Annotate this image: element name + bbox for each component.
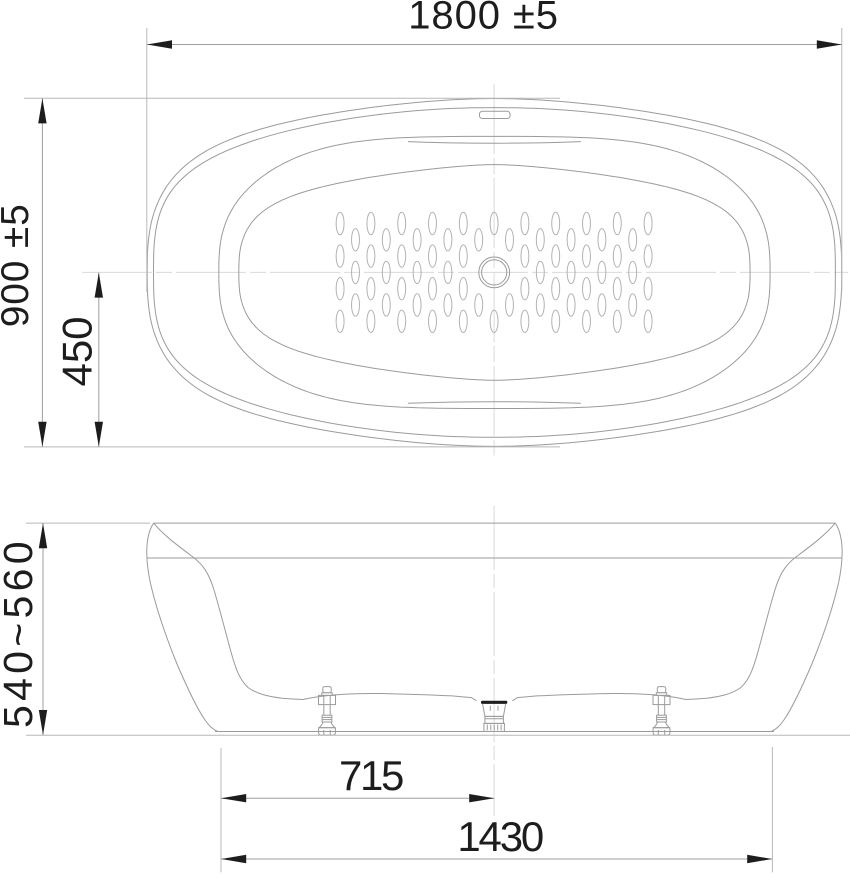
svg-text:1800 ±5: 1800 ±5 [408,0,559,38]
svg-text:715: 715 [339,752,403,799]
svg-text:540~560: 540~560 [0,537,41,728]
svg-text:450: 450 [54,316,101,386]
svg-text:1430: 1430 [457,813,542,860]
svg-text:900 ±5: 900 ±5 [0,203,37,327]
